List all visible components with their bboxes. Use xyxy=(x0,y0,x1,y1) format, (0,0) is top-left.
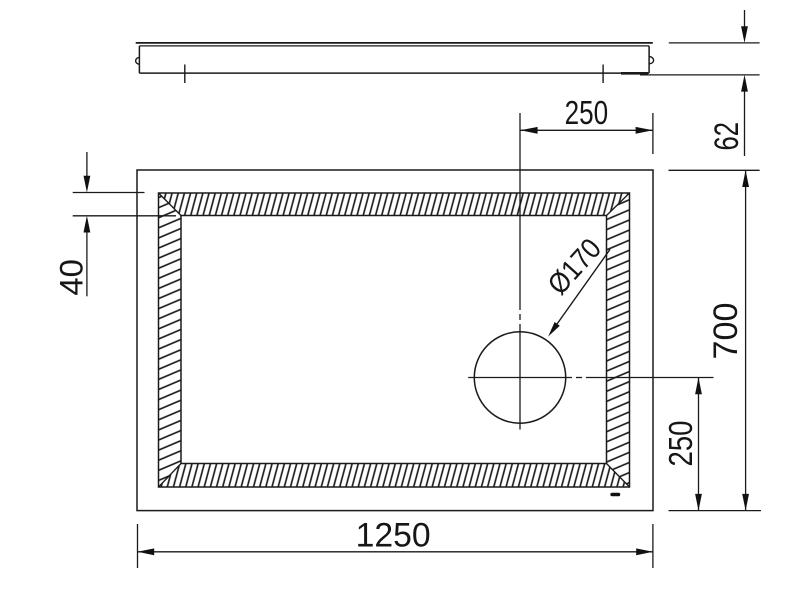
svg-text:700: 700 xyxy=(707,303,745,360)
svg-text:250: 250 xyxy=(565,95,609,132)
svg-text:250: 250 xyxy=(663,421,700,467)
svg-text:40: 40 xyxy=(53,259,89,296)
svg-text:62: 62 xyxy=(708,122,746,151)
svg-text:1250: 1250 xyxy=(356,517,431,555)
